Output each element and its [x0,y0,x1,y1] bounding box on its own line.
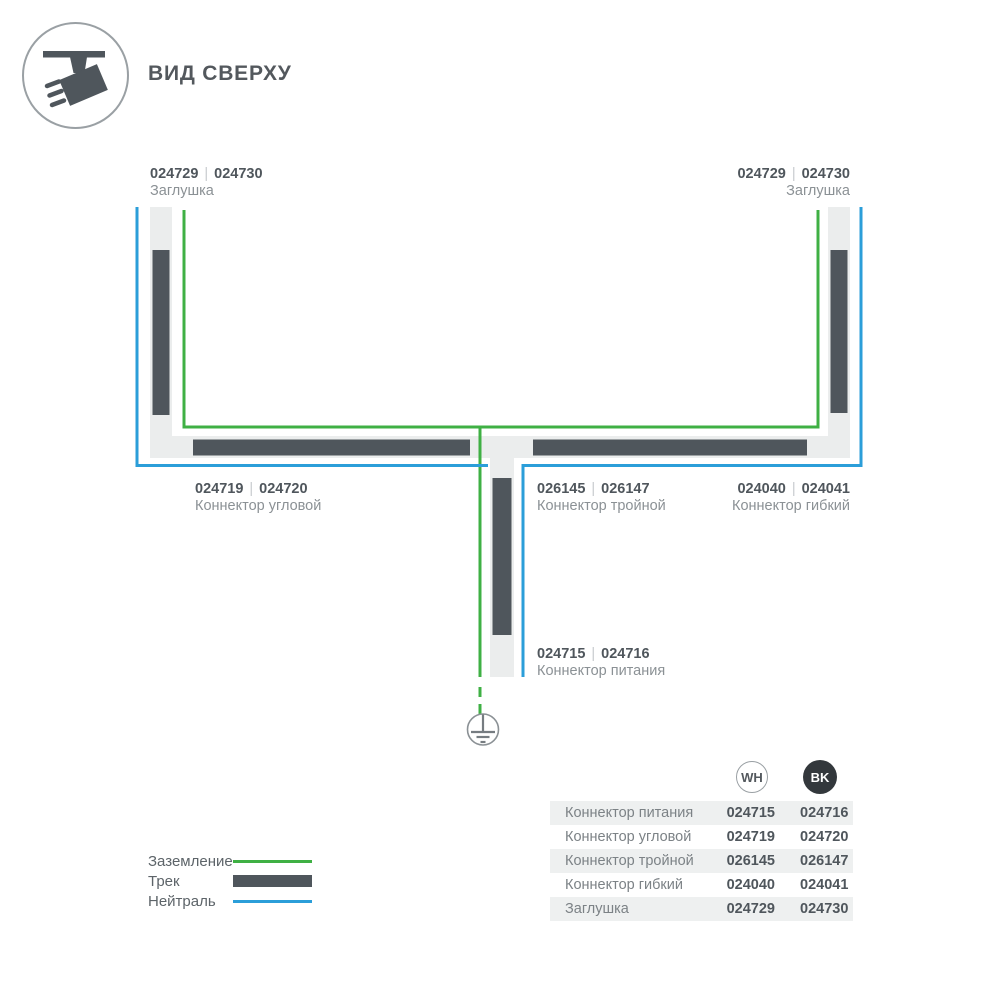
part-codes: 024715|024716 [537,646,665,663]
earth-ground-icon [468,714,499,745]
part-codes: 024040|024041 [732,481,850,498]
part-codes: 024729|024730 [150,166,263,183]
table-row: Коннектор гибкий 024040 024041 [550,873,853,897]
part-codes: 024719|024720 [195,481,321,498]
part-name: Коннектор угловой [195,498,321,515]
part-codes: 026145|026147 [537,481,666,498]
table-row: Коннектор угловой 024719 024720 [550,825,853,849]
part-name: Коннектор гибкий [732,498,850,515]
legend-item-ground: Заземление [148,851,312,871]
column-badge-wh: WH [736,761,768,793]
green-line-icon [233,860,312,863]
part-codes: 024729|024730 [737,166,850,183]
track-bar-right [831,250,848,413]
part-name: Коннектор питания [537,663,665,680]
legend: Заземление Трек Нейтраль [148,851,312,911]
part-label-corner-connector: 024719|024720 Коннектор угловой [195,481,321,515]
page: ВИД СВЕРХУ 024729 [0,0,1000,1000]
track-bar-horizontal-left [193,440,470,456]
legend-item-neutral: Нейтраль [148,891,312,911]
table-row: Коннектор питания 024715 024716 [550,801,853,825]
part-name: Заглушка [737,183,850,200]
track-bar-icon [233,875,312,887]
blue-line-icon [233,900,312,903]
track-bar-horizontal-right [533,440,807,456]
column-badge-bk: BK [803,760,837,794]
table-row: Коннектор тройной 026145 026147 [550,849,853,873]
ground-wire [184,210,818,427]
table-row: Заглушка 024729 024730 [550,897,853,921]
part-name: Коннектор тройной [537,498,666,515]
legend-item-track: Трек [148,871,312,891]
part-name: Заглушка [150,183,263,200]
part-label-endcap-left: 024729|024730 Заглушка [150,166,263,200]
track-bar-drop [493,478,512,635]
part-label-triple-connector: 026145|026147 Коннектор тройной [537,481,666,515]
part-label-endcap-right: 024729|024730 Заглушка [737,166,850,200]
track-bar-left [153,250,170,415]
part-label-flex-connector: 024040|024041 Коннектор гибкий [732,481,850,515]
parts-table: Коннектор питания 024715 024716 Коннекто… [550,801,853,921]
part-label-power-connector: 024715|024716 Коннектор питания [537,646,665,680]
